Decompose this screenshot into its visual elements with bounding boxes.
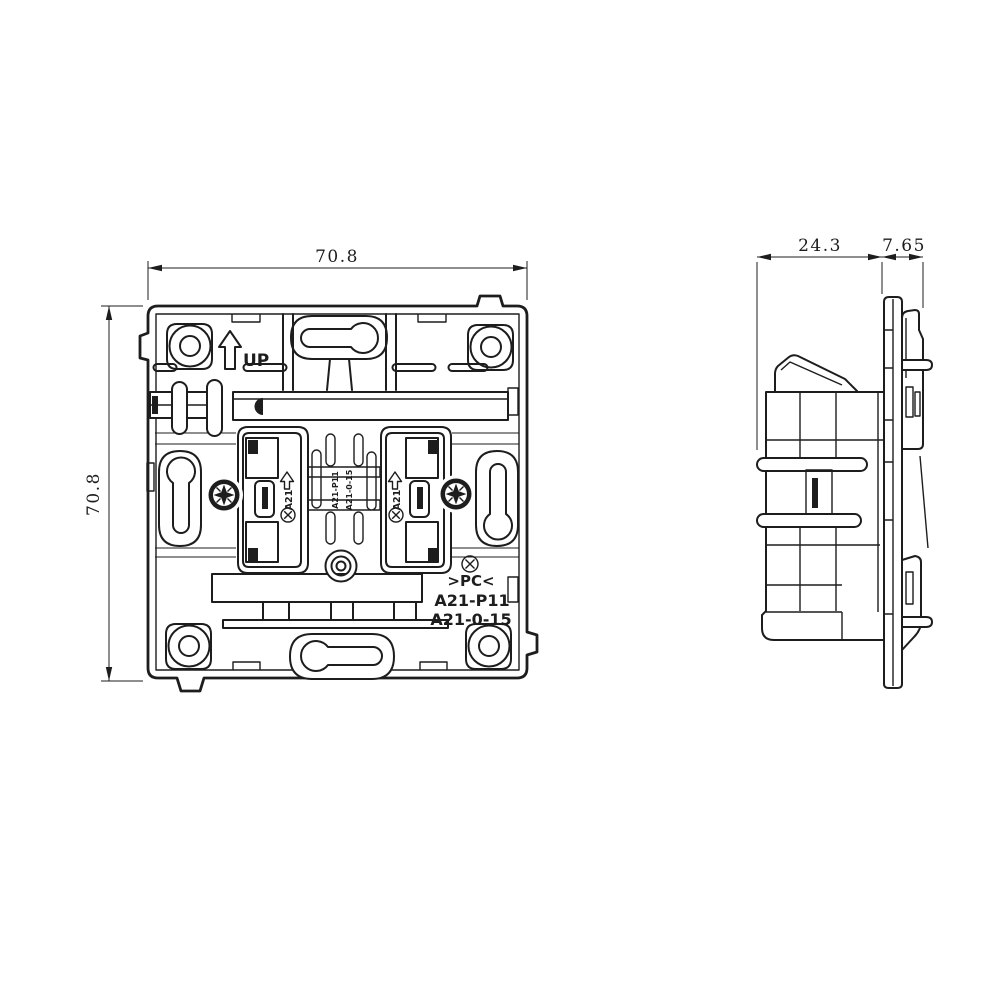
circled-x-cross [466, 560, 475, 569]
side-body-mark [812, 478, 818, 508]
model-line-1: A21-P11 [434, 591, 509, 610]
circled-x-icon-marking [462, 556, 478, 572]
side-view [757, 297, 932, 688]
terminal-left-label: A21 [284, 490, 295, 511]
phillips-screw-left [205, 476, 243, 514]
mold-text-1: A21-P11 [331, 471, 340, 509]
front-width-dim: 70.8 [315, 247, 359, 267]
front-height-dim: 70.8 [84, 472, 104, 516]
material-mark: >PC< [447, 572, 494, 590]
mold-text-2: A21-0-15 [345, 469, 354, 510]
model-line-2: A21-0-15 [430, 610, 511, 629]
up-label: UP [243, 351, 269, 371]
phillips-screw-right [437, 475, 475, 513]
center-pins [308, 434, 380, 544]
clamp-mark [152, 396, 158, 414]
technical-drawing: UP A21 A21 A21-P11 A21-0-15 [0, 0, 1000, 1000]
up-arrow-icon [219, 331, 241, 369]
side-flange-depth-dim: 7.65 [882, 236, 926, 256]
center-screw [326, 551, 357, 582]
side-body-depth-dim: 24.3 [798, 236, 842, 256]
terminal-right-label: A21 [392, 490, 403, 511]
bottom-frame [212, 574, 448, 628]
front-view: UP A21 A21 A21-P11 A21-0-15 [140, 296, 537, 691]
center-bar [150, 392, 508, 420]
